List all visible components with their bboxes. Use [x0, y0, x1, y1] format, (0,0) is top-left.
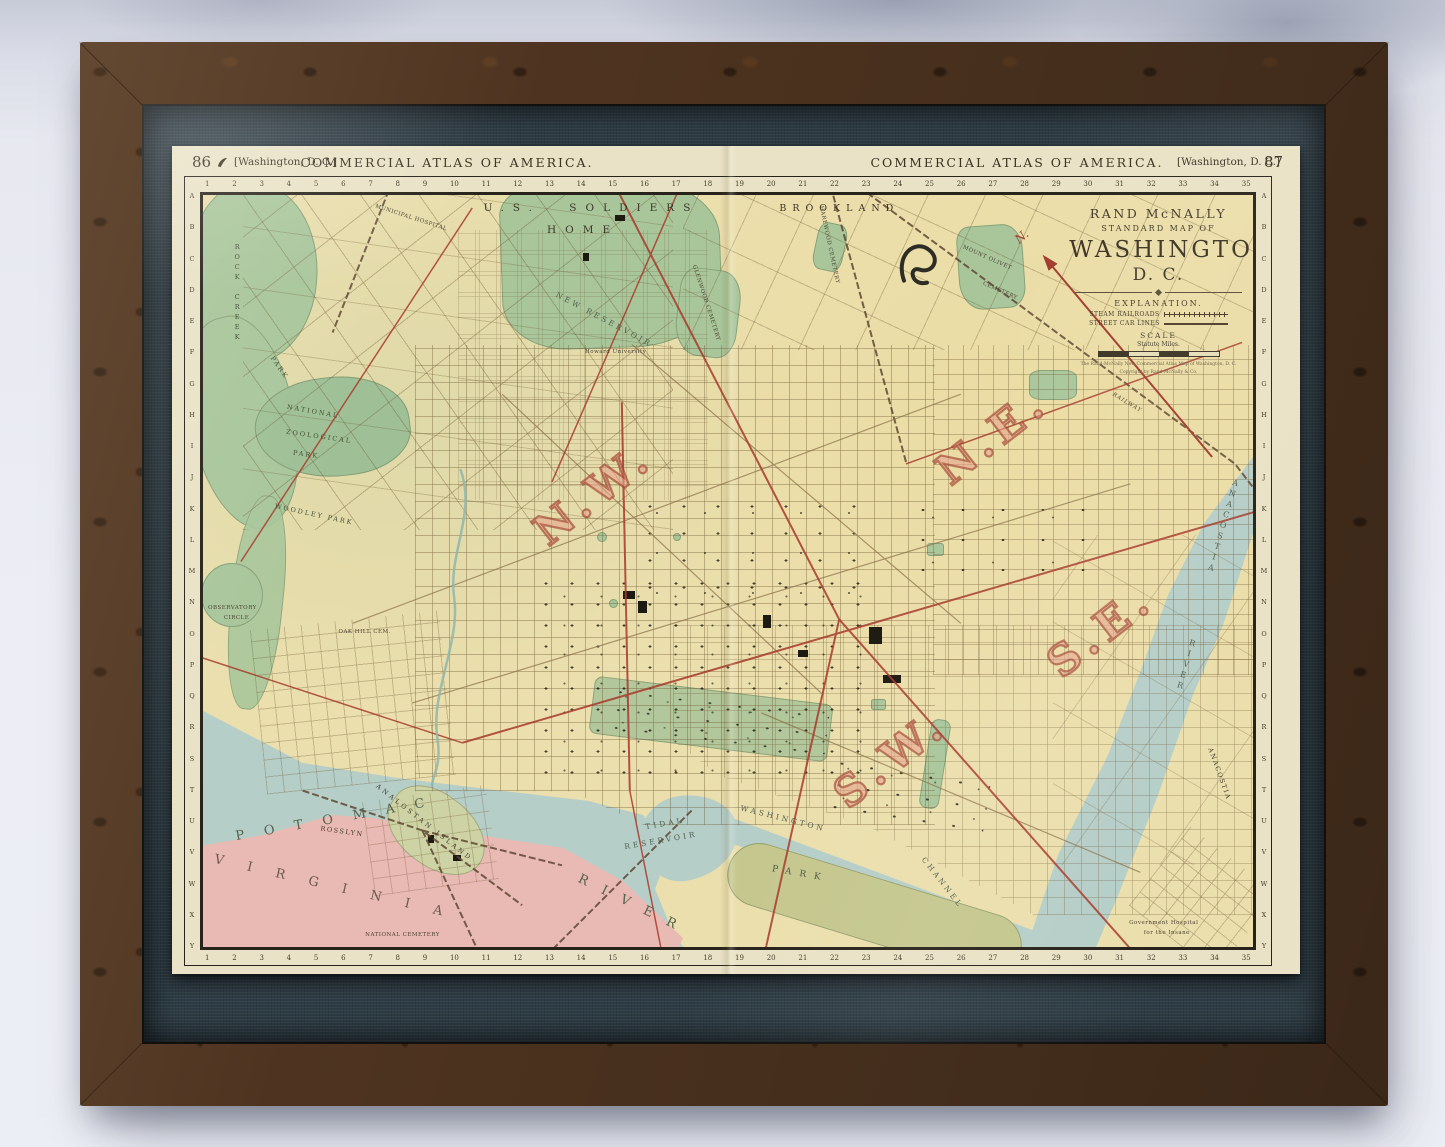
- building-mark: [583, 253, 589, 261]
- legend-label: STEAM RAILROADS: [1089, 311, 1159, 318]
- grid-index: 31: [1115, 954, 1124, 962]
- grid-index: 5: [314, 954, 318, 962]
- map-label: RAILWAY: [1111, 391, 1143, 413]
- grid-index: 7: [368, 180, 372, 188]
- map-label: for the Insane: [1144, 930, 1190, 936]
- grid-index: 1: [205, 954, 209, 962]
- grid-index: 7: [368, 954, 372, 962]
- grid-index: K: [1262, 505, 1267, 513]
- wall-background: 86 [Washington, D. C.] COMMERCIAL ATLAS …: [0, 0, 1445, 1147]
- grid-index: N: [1261, 598, 1267, 606]
- page-number-left: 86: [192, 148, 211, 176]
- grid-index: 15: [608, 180, 617, 188]
- grid-index: 17: [672, 954, 681, 962]
- grid-index: C: [190, 255, 195, 263]
- grid-index: 26: [957, 180, 966, 188]
- grid-index: 33: [1178, 180, 1187, 188]
- observatory-circle-shape: [201, 563, 263, 627]
- grid-index: Q: [1261, 692, 1266, 700]
- grid-index: J: [191, 473, 194, 481]
- capitol-building-mark: [869, 627, 882, 644]
- grid-index: N: [189, 598, 195, 606]
- grid-index: 26: [957, 954, 966, 962]
- grid-scale-right: ABCDEFGHIJKLMNOPQRSTUVWXY: [1257, 192, 1271, 950]
- scale-heading: SCALE: [1069, 331, 1248, 340]
- grid-index: 10: [450, 180, 459, 188]
- grid-index: 14: [577, 954, 586, 962]
- grid-index: E: [1262, 317, 1267, 325]
- grid-index: 8: [396, 954, 400, 962]
- grid-index: 32: [1147, 954, 1156, 962]
- page-number-right: 87: [1264, 148, 1283, 176]
- frame-miter-joint: [1324, 1042, 1388, 1106]
- grid-index: 23: [862, 180, 871, 188]
- grid-index: 24: [893, 180, 902, 188]
- grid-index: 11: [482, 954, 491, 962]
- map-title-block: RAND McNALLY STANDARD MAP OF WASHINGTON …: [1069, 206, 1248, 376]
- mat-board: 86 [Washington, D. C.] COMMERCIAL ATLAS …: [142, 104, 1326, 1044]
- grid-index: 22: [830, 180, 839, 188]
- map-label: Government Hospital: [1129, 920, 1198, 926]
- steam-railroad-line-icon: [1164, 312, 1228, 317]
- grid-index: 33: [1178, 954, 1187, 962]
- grid-index: 6: [341, 180, 345, 188]
- grid-index: F: [1262, 348, 1267, 356]
- grid-index: 17: [672, 180, 681, 188]
- grid-index: Y: [190, 942, 194, 950]
- grid-index: B: [190, 223, 195, 231]
- imprint-line: Copyright by Rand McNally & Co.: [1069, 370, 1248, 376]
- legend-label: STREET CAR LINES: [1089, 320, 1160, 327]
- grid-index: 28: [1020, 954, 1029, 962]
- publisher-name: RAND McNALLY: [1069, 206, 1248, 221]
- grid-index: P: [190, 661, 194, 669]
- grid-index: 4: [287, 180, 291, 188]
- grid-index: 21: [798, 180, 807, 188]
- street-car-line-icon: [1164, 323, 1228, 325]
- grid-index: J: [1263, 473, 1266, 481]
- grid-index: S: [1262, 755, 1266, 763]
- grid-index: 34: [1210, 180, 1219, 188]
- grid-index: K: [190, 505, 195, 513]
- grid-index: F: [190, 348, 195, 356]
- grid-index: B: [1262, 223, 1267, 231]
- grid-index: 15: [608, 954, 617, 962]
- grid-index: 30: [1083, 954, 1092, 962]
- grid-index: 18: [703, 954, 712, 962]
- national-mall-shape: [588, 676, 833, 763]
- grid-index: 6: [341, 954, 345, 962]
- atlas-page-header: 86 [Washington, D. C.] COMMERCIAL ATLAS …: [172, 148, 1300, 176]
- rock-creek-stream: [432, 469, 465, 788]
- grid-index: 25: [925, 180, 934, 188]
- picture-frame: 86 [Washington, D. C.] COMMERCIAL ATLAS …: [80, 42, 1388, 1106]
- grid-index: 32: [1147, 180, 1156, 188]
- building-cluster: [633, 493, 858, 608]
- building-cluster: [903, 495, 1108, 580]
- map-canvas: N.W.N.E.S.E.S.W.U.S. SOLDIERSHOMEBROOKLA…: [200, 192, 1256, 950]
- grid-index: 9: [423, 954, 427, 962]
- grid-index: O: [1261, 630, 1266, 638]
- grid-index: 22: [830, 954, 839, 962]
- grid-index: 20: [767, 180, 776, 188]
- white-house-mark: [623, 591, 635, 599]
- glenwood-cemetery-shape: [672, 266, 744, 361]
- grid-index: 3: [259, 180, 263, 188]
- imprint-line: The Rand-McNally New Commercial Atlas Ma…: [1069, 362, 1248, 368]
- legend-row: STREET CAR LINES: [1069, 320, 1248, 327]
- grid-index: 2: [232, 954, 236, 962]
- grid-index: R: [1262, 723, 1267, 731]
- building-mark: [638, 601, 647, 613]
- grid-index: 23: [862, 954, 871, 962]
- grid-scale-bottom: 1234567891011121314151617181920212223242…: [200, 951, 1256, 965]
- divider-ornament-icon: [1155, 289, 1162, 296]
- grid-index: V: [190, 848, 195, 856]
- grid-index: 24: [893, 954, 902, 962]
- grid-index: S: [190, 755, 194, 763]
- grid-index: 34: [1210, 954, 1219, 962]
- grid-index: 16: [640, 954, 649, 962]
- grid-index: G: [1261, 380, 1266, 388]
- grid-scale-left: ABCDEFGHIJKLMNOPQRSTUVWXY: [185, 192, 199, 950]
- grid-index: V: [1262, 848, 1267, 856]
- grid-index: 16: [640, 180, 649, 188]
- grid-index: M: [189, 567, 196, 575]
- grid-index: L: [190, 536, 194, 544]
- grid-index: 1: [205, 180, 209, 188]
- grid-index: P: [1262, 661, 1266, 669]
- grid-index: D: [189, 286, 194, 294]
- grid-index: O: [189, 630, 194, 638]
- map-label: OAK HILL CEM.: [338, 629, 390, 635]
- grid-index: 20: [767, 954, 776, 962]
- frame-mi­ter-joint: [1324, 42, 1388, 106]
- small-park-shape: [673, 533, 681, 541]
- grid-index: A: [190, 192, 195, 200]
- building-mark: [883, 675, 901, 683]
- atlas-title-right: COMMERCIAL ATLAS OF AMERICA.: [887, 148, 1147, 176]
- grid-index: X: [1262, 911, 1267, 919]
- building-mark: [428, 835, 434, 843]
- grid-index: T: [190, 786, 194, 794]
- explanation-heading: EXPLANATION.: [1069, 299, 1248, 308]
- grid-index: 19: [735, 954, 744, 962]
- harewood-cemetery-shape: [810, 220, 849, 273]
- building-mark: [798, 650, 808, 657]
- grid-index: Y: [1262, 942, 1266, 950]
- grid-index: 31: [1115, 180, 1124, 188]
- grid-index: 30: [1083, 180, 1092, 188]
- grid-index: I: [191, 442, 194, 450]
- grid-index: T: [1262, 786, 1266, 794]
- grid-index: 28: [1020, 180, 1029, 188]
- grid-index: 13: [545, 954, 554, 962]
- grid-index: Q: [189, 692, 194, 700]
- grid-index: 12: [513, 954, 522, 962]
- grid-index: 9: [423, 180, 427, 188]
- map-label: N.W.: [525, 433, 662, 554]
- grid-index: 14: [577, 180, 586, 188]
- map-sheet: 86 [Washington, D. C.] COMMERCIAL ATLAS …: [172, 146, 1300, 974]
- grid-index: 29: [1052, 954, 1061, 962]
- grid-index: 35: [1242, 954, 1251, 962]
- grid-index: M: [1261, 567, 1268, 575]
- frame-miter-joint: [79, 1042, 143, 1106]
- small-park-shape: [597, 532, 607, 542]
- legend-row: STEAM RAILROADS: [1069, 311, 1248, 318]
- scale-units: Statute Miles.: [1069, 341, 1248, 348]
- grid-index: 12: [513, 180, 522, 188]
- grid-index: A: [1262, 192, 1267, 200]
- grid-index: 18: [703, 180, 712, 188]
- grid-index: I: [1263, 442, 1266, 450]
- grid-index: L: [1262, 536, 1266, 544]
- map-series: STANDARD MAP OF: [1069, 224, 1248, 233]
- grid-index: 21: [798, 954, 807, 962]
- grid-index: U: [1261, 817, 1266, 825]
- grid-index: U: [189, 817, 194, 825]
- grid-index: C: [1262, 255, 1267, 263]
- building-mark: [763, 615, 771, 628]
- small-park-shape: [927, 543, 944, 556]
- small-park-shape: [609, 599, 618, 608]
- map-border: 1234567891011121314151617181920212223242…: [184, 176, 1272, 966]
- anacostia-river-shape: [1003, 415, 1256, 950]
- grid-index: 8: [396, 180, 400, 188]
- mount-olivet-cemetery-shape: [955, 223, 1027, 311]
- grid-index: 29: [1052, 180, 1061, 188]
- map-title: WASHINGTON: [1069, 237, 1248, 263]
- map-subtitle: D. C.: [1069, 265, 1248, 285]
- grid-scale-top: 1234567891011121314151617181920212223242…: [200, 177, 1256, 191]
- atlas-title-left: COMMERCIAL ATLAS OF AMERICA.: [317, 148, 577, 176]
- scale-bar: [1098, 351, 1220, 357]
- grid-index: 3: [259, 954, 263, 962]
- canal-park-shape: [918, 718, 952, 810]
- grid-index: 10: [450, 954, 459, 962]
- grid-index: 35: [1242, 180, 1251, 188]
- grid-index: 5: [314, 180, 318, 188]
- grid-index: 19: [735, 180, 744, 188]
- grid-index: E: [190, 317, 195, 325]
- grid-index: 27: [988, 954, 997, 962]
- grid-index: H: [189, 411, 195, 419]
- small-park-shape: [871, 699, 886, 710]
- building-mark: [615, 215, 625, 221]
- printers-mark-icon: [216, 148, 229, 176]
- map-label: Howard University: [585, 349, 646, 355]
- map-label: BROOKLAND: [779, 204, 899, 214]
- washington-park-shape: [719, 835, 1029, 950]
- ink-squiggle: [902, 246, 935, 283]
- grid-index: R: [190, 723, 195, 731]
- grid-index: 27: [988, 180, 997, 188]
- grid-index: 11: [482, 180, 491, 188]
- grid-index: 25: [925, 954, 934, 962]
- grid-index: X: [190, 911, 195, 919]
- grid-index: 13: [545, 180, 554, 188]
- street-grid-patch: [1129, 827, 1256, 950]
- grid-index: W: [1261, 880, 1268, 888]
- building-cluster: [819, 750, 992, 837]
- grid-index: W: [189, 880, 196, 888]
- title-divider: [1075, 290, 1242, 295]
- map-label: MUNICIPAL HOSPITAL: [374, 203, 447, 232]
- street-grid-patch: [415, 345, 935, 825]
- grid-index: H: [1261, 411, 1267, 419]
- map-label: ANACOSTIA: [1207, 747, 1232, 801]
- grid-index: 4: [287, 954, 291, 962]
- grid-index: G: [189, 380, 194, 388]
- building-mark: [453, 855, 461, 861]
- grid-index: D: [1261, 286, 1266, 294]
- grid-index: 2: [232, 180, 236, 188]
- frame-miter-joint: [79, 42, 143, 106]
